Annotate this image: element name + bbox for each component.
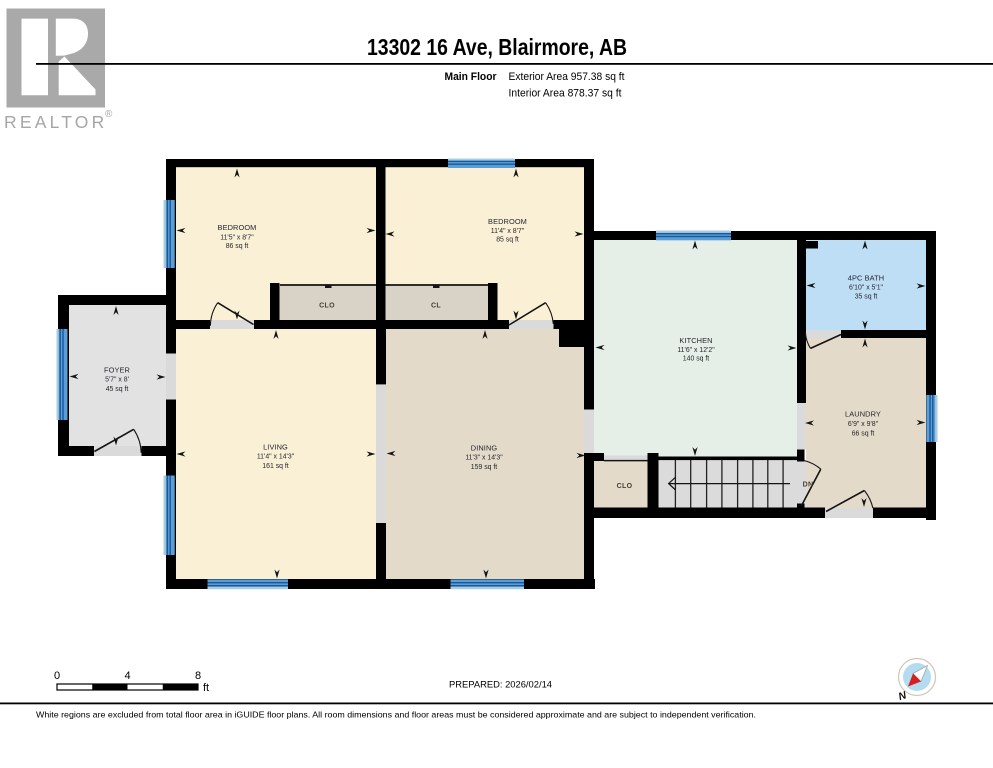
svg-text:86 sq ft: 86 sq ft — [226, 243, 249, 250]
svg-text:®: ® — [105, 109, 113, 120]
svg-text:Main Floor: Main Floor — [445, 71, 498, 83]
svg-text:0: 0 — [54, 670, 60, 682]
svg-text:140 sq ft: 140 sq ft — [683, 356, 710, 363]
svg-text:11'3" x 14'3": 11'3" x 14'3" — [465, 455, 503, 462]
svg-text:11'4" x 8'7": 11'4" x 8'7" — [491, 228, 525, 235]
svg-text:CLO: CLO — [617, 483, 633, 490]
svg-text:Interior Area 878.37 sq ft: Interior Area 878.37 sq ft — [509, 87, 622, 99]
svg-text:11'5" x 8'7": 11'5" x 8'7" — [220, 235, 254, 242]
svg-text:5'7" x 8': 5'7" x 8' — [105, 377, 129, 384]
svg-text:FOYER: FOYER — [104, 366, 130, 375]
svg-text:CL: CL — [431, 303, 441, 310]
svg-text:11'4" x 14'3": 11'4" x 14'3" — [257, 454, 295, 461]
svg-text:CLO: CLO — [319, 303, 335, 310]
svg-text:REALTOR: REALTOR — [4, 112, 107, 132]
svg-text:DN: DN — [803, 482, 814, 489]
svg-text:ft: ft — [203, 682, 209, 694]
svg-text:PREPARED: 2026/02/14: PREPARED: 2026/02/14 — [449, 680, 552, 690]
svg-text:11'6" x 12'2": 11'6" x 12'2" — [677, 347, 715, 354]
svg-text:KITCHEN: KITCHEN — [679, 336, 712, 345]
svg-text:6'10" x 5'1": 6'10" x 5'1" — [849, 285, 884, 292]
svg-text:6'9" x 9'8": 6'9" x 9'8" — [848, 421, 879, 428]
svg-text:Exterior Area 957.38 sq ft: Exterior Area 957.38 sq ft — [509, 71, 625, 83]
svg-text:35 sq ft: 35 sq ft — [855, 294, 878, 301]
svg-text:BEDROOM: BEDROOM — [488, 217, 527, 226]
svg-text:4: 4 — [124, 670, 130, 682]
svg-text:161 sq ft: 161 sq ft — [262, 463, 289, 470]
svg-text:DINING: DINING — [471, 444, 498, 453]
svg-text:LIVING: LIVING — [263, 443, 288, 452]
svg-text:8: 8 — [195, 670, 201, 682]
svg-text:66 sq ft: 66 sq ft — [852, 431, 875, 438]
svg-text:White regions are excluded fro: White regions are excluded from total fl… — [36, 710, 756, 720]
svg-text:85 sq ft: 85 sq ft — [496, 237, 519, 244]
svg-text:4PC BATH: 4PC BATH — [848, 274, 884, 283]
svg-text:45 sq ft: 45 sq ft — [106, 386, 129, 393]
svg-text:159 sq ft: 159 sq ft — [471, 464, 498, 471]
svg-text:BEDROOM: BEDROOM — [218, 223, 257, 232]
svg-text:13302 16 Ave, Blairmore, AB: 13302 16 Ave, Blairmore, AB — [367, 34, 627, 60]
svg-text:LAUNDRY: LAUNDRY — [845, 410, 881, 419]
